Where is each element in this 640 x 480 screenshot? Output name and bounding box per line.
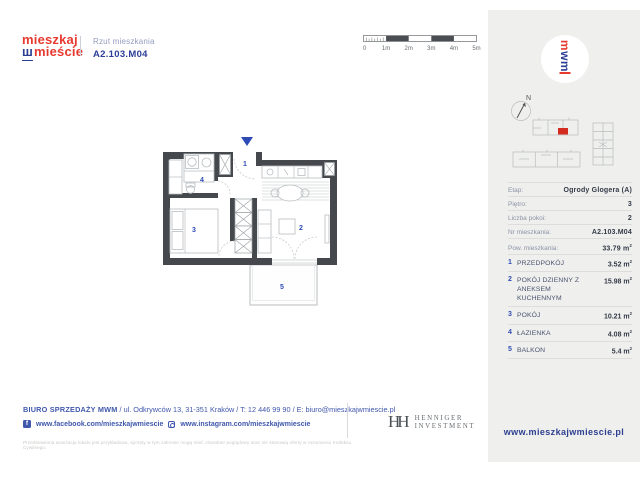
instagram-icon xyxy=(168,421,175,428)
info-sidebar: mwm N xyxy=(488,10,640,462)
brand-logo-line2: шmieście xyxy=(22,46,83,58)
sales-office-details: / ul. Odkrywców 13, 31-351 Kraków / T: 1… xyxy=(117,405,395,414)
room-name: PRZEDPOKÓJ xyxy=(517,259,596,268)
area-value: 33.79 xyxy=(602,245,621,252)
sales-office-label: BIURO SPRZEDAŻY MWM xyxy=(23,405,117,414)
building-a-plan xyxy=(533,118,578,136)
room-list: 1 PRZEDPOKÓJ 3.52 m2 2 POKÓJ DZIENNY ZAN… xyxy=(508,255,632,359)
sofa xyxy=(258,210,271,253)
sales-office-line: BIURO SPRZEDAŻY MWM / ul. Odkrywców 13, … xyxy=(23,405,395,414)
floor-plan: 1 2 3 4 5 xyxy=(148,123,358,318)
plan-label-room1: 1 xyxy=(243,161,247,168)
mwm-badge-first-letter: m xyxy=(558,40,572,51)
detail-label: Pow. mieszkania: xyxy=(508,245,558,252)
scale-bar: 0 1m 2m 3m 4m 5m xyxy=(363,30,485,56)
mwm-badge-rest: wm xyxy=(558,51,572,72)
mwm-badge-underline xyxy=(560,72,571,74)
detail-row-etap: Etap: Ogrody Glogera (A) xyxy=(508,183,632,197)
area-unit-sup: 2 xyxy=(630,346,632,351)
scale-label-1m: 1m xyxy=(382,46,390,52)
area-unit-sup: 2 xyxy=(630,276,632,281)
wardrobe xyxy=(235,199,252,253)
partner-monogram: HH xyxy=(388,412,410,432)
mwm-badge: mwm xyxy=(541,35,589,83)
scale-label-4m: 4m xyxy=(450,46,458,52)
detail-row-pietro: Piętro: 3 xyxy=(508,197,632,211)
unit-number: A2.103.M04 xyxy=(93,49,155,60)
area-value: 4.08 xyxy=(608,331,622,338)
building-bottom-plan xyxy=(513,150,580,168)
document-title-block: Rzut mieszkania A2.103.M04 xyxy=(93,37,155,60)
plan-label-room4: 4 xyxy=(200,177,204,184)
facebook-icon: f xyxy=(23,420,31,428)
room-row-balkon: 5 BALKON 5.4 m2 xyxy=(508,342,632,359)
scale-label-5m: 5m xyxy=(472,46,480,52)
detail-value: 2 xyxy=(628,215,632,222)
header-divider xyxy=(80,36,81,56)
brand-logo: mieszkaj шmieście xyxy=(22,34,83,58)
detail-value: 33.79 m2 xyxy=(602,243,632,252)
detail-value: 3 xyxy=(628,201,632,208)
entrance-arrow-icon xyxy=(241,137,253,146)
room-area: 15.98 m2 xyxy=(596,276,632,285)
detail-value: A2.103.M04 xyxy=(592,229,632,236)
document-type: Rzut mieszkania xyxy=(93,37,155,46)
coffee-table xyxy=(279,219,295,234)
room-row-pokoj-dzienny: 2 POKÓJ DZIENNY ZANEKSEM KUCHENNYM 15.98… xyxy=(508,272,632,307)
detail-label: Etap: xyxy=(508,187,523,194)
kitchen-counter xyxy=(262,166,322,178)
detail-row-pow-mieszkania: Pow. mieszkania: 33.79 m2 xyxy=(508,239,632,255)
room-number: 5 xyxy=(508,346,517,353)
room-name-line1: POKÓJ DZIENNY Z xyxy=(517,277,579,284)
facebook-link[interactable]: www.facebook.com/mieszkajwmiescie xyxy=(36,421,163,428)
scale-segment-1-2m xyxy=(386,36,409,41)
partner-logo: HH HENNIGERINVESTMENT xyxy=(388,412,475,432)
social-links-row: f www.facebook.com/mieszkajwmiescie www.… xyxy=(23,420,310,428)
compass: N xyxy=(512,95,532,121)
room-name: POKÓJ DZIENNY ZANEKSEM KUCHENNYM xyxy=(517,276,596,303)
detail-value: Ogrody Glogera (A) xyxy=(563,187,632,194)
room-area: 4.08 m2 xyxy=(596,329,632,338)
legal-disclaimer: Przedstawiona aranżacja lokalu jest przy… xyxy=(23,440,353,450)
plan-label-room5: 5 xyxy=(280,284,284,291)
floorplan-sheet: mieszkaj шmieście Rzut mieszkania A2.103… xyxy=(0,0,640,480)
room-number: 4 xyxy=(508,329,517,336)
scale-label-0: 0 xyxy=(363,46,367,52)
area-unit-sup: 2 xyxy=(630,259,632,264)
website-link[interactable]: www.mieszkajwmiescie.pl xyxy=(488,427,640,437)
area-value: 15.98 xyxy=(604,279,622,286)
room-name: BALKON xyxy=(517,346,596,355)
area-value: 10.21 xyxy=(604,314,622,321)
dining-table xyxy=(271,185,309,201)
radiator xyxy=(325,215,329,243)
partner-name: HENNIGERINVESTMENT xyxy=(415,414,476,431)
partner-name-line1: HENNIGER xyxy=(415,414,464,422)
room-number: 3 xyxy=(508,311,517,318)
area-unit-sup: 2 xyxy=(629,243,632,248)
detail-label: Piętro: xyxy=(508,201,527,208)
room-number: 1 xyxy=(508,259,517,266)
plan-label-room3: 3 xyxy=(192,227,196,234)
bathroom-fixtures xyxy=(169,154,214,194)
scale-label-2m: 2m xyxy=(405,46,413,52)
room-name: ŁAZIENKA xyxy=(517,329,596,338)
area-value: 3.52 xyxy=(608,261,622,268)
detail-row-liczba-pokoi: Liczba pokoi: 2 xyxy=(508,211,632,225)
room-area: 3.52 m2 xyxy=(596,259,632,268)
scale-label-3m: 3m xyxy=(427,46,435,52)
highlighted-unit xyxy=(558,128,568,135)
room-name: POKÓJ xyxy=(517,311,596,320)
plan-label-room2: 2 xyxy=(299,225,303,232)
footer-divider xyxy=(347,403,348,438)
partner-name-line2: INVESTMENT xyxy=(415,422,476,430)
detail-label: Liczba pokoi: xyxy=(508,215,546,222)
scale-segment-3-4m xyxy=(431,36,454,41)
mwm-badge-text: mwm xyxy=(558,40,572,72)
room-row-pokoj: 3 POKÓJ 10.21 m2 xyxy=(508,307,632,324)
room-area: 10.21 m2 xyxy=(596,311,632,320)
shaft-entry xyxy=(217,152,233,177)
instagram-link[interactable]: www.instagram.com/mieszkajwmiescie xyxy=(180,421,310,428)
room-area: 5.4 m2 xyxy=(596,346,632,355)
building-right-plan xyxy=(593,123,613,165)
site-plan: N xyxy=(495,92,633,178)
brand-w-mark: ш xyxy=(22,44,33,59)
room-row-przedpokoj: 1 PRZEDPOKÓJ 3.52 m2 xyxy=(508,255,632,272)
area-value: 5.4 xyxy=(612,348,622,355)
detail-label: Nr mieszkania: xyxy=(508,229,551,236)
room-row-lazienka: 4 ŁAZIENKA 4.08 m2 xyxy=(508,325,632,342)
area-unit-sup: 2 xyxy=(630,311,632,316)
compass-n-label: N xyxy=(526,95,531,102)
unit-details-table: Etap: Ogrody Glogera (A) Piętro: 3 Liczb… xyxy=(508,182,632,255)
brand-logo-line2-text: mieście xyxy=(34,44,83,59)
area-unit-sup: 2 xyxy=(630,329,632,334)
room-number: 2 xyxy=(508,276,517,283)
room-name-line2: ANEKSEM KUCHENNYM xyxy=(517,286,562,302)
shaft-kitchen xyxy=(322,160,337,178)
detail-row-nr-mieszkania: Nr mieszkania: A2.103.M04 xyxy=(508,225,632,239)
